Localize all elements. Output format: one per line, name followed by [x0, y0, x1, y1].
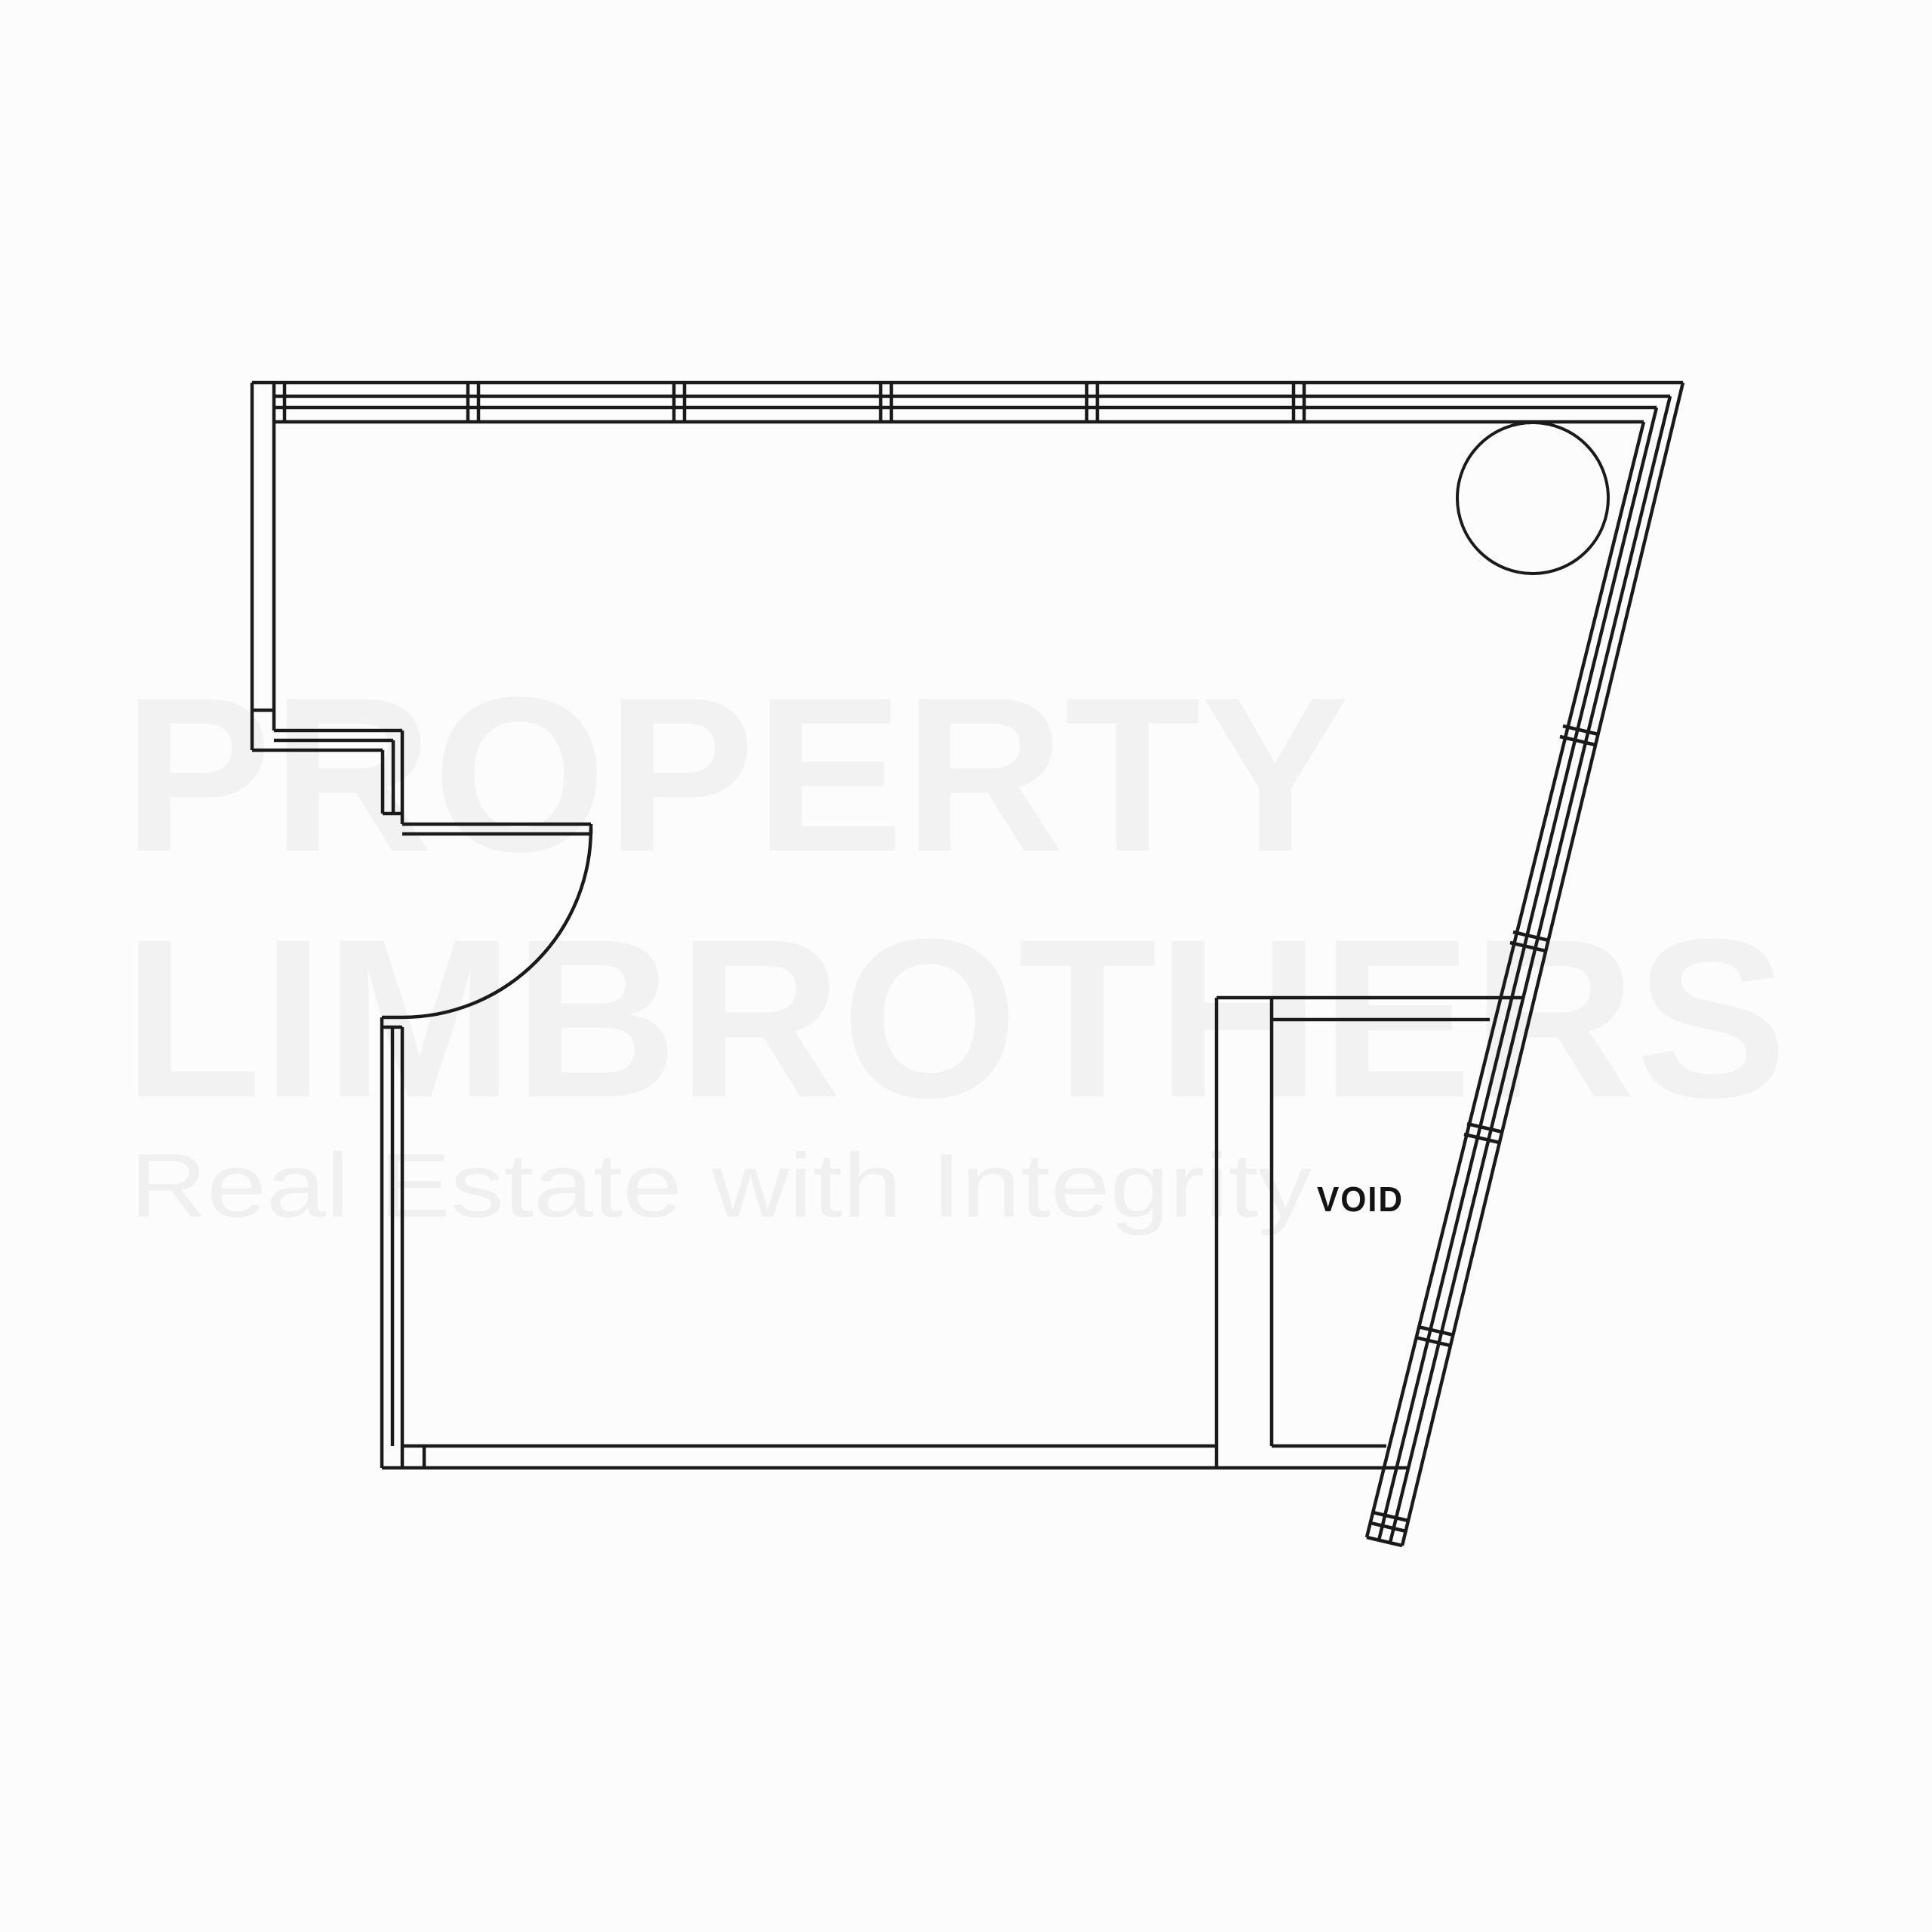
- column-circle: [1457, 423, 1608, 574]
- watermark-line-2: LIMBROTHERS: [123, 891, 1787, 1145]
- void-room-label: VOID: [1317, 1180, 1404, 1219]
- top-window-mullions: [285, 383, 1304, 422]
- floor-plan-canvas: PROPERTY LIMBROTHERS Real Estate with In…: [0, 0, 1932, 1932]
- watermark-line-1: PROPERTY: [123, 651, 1349, 897]
- watermark-tagline: Real Estate with Integrity: [130, 1135, 1312, 1236]
- bottom-wall: [382, 1446, 1408, 1468]
